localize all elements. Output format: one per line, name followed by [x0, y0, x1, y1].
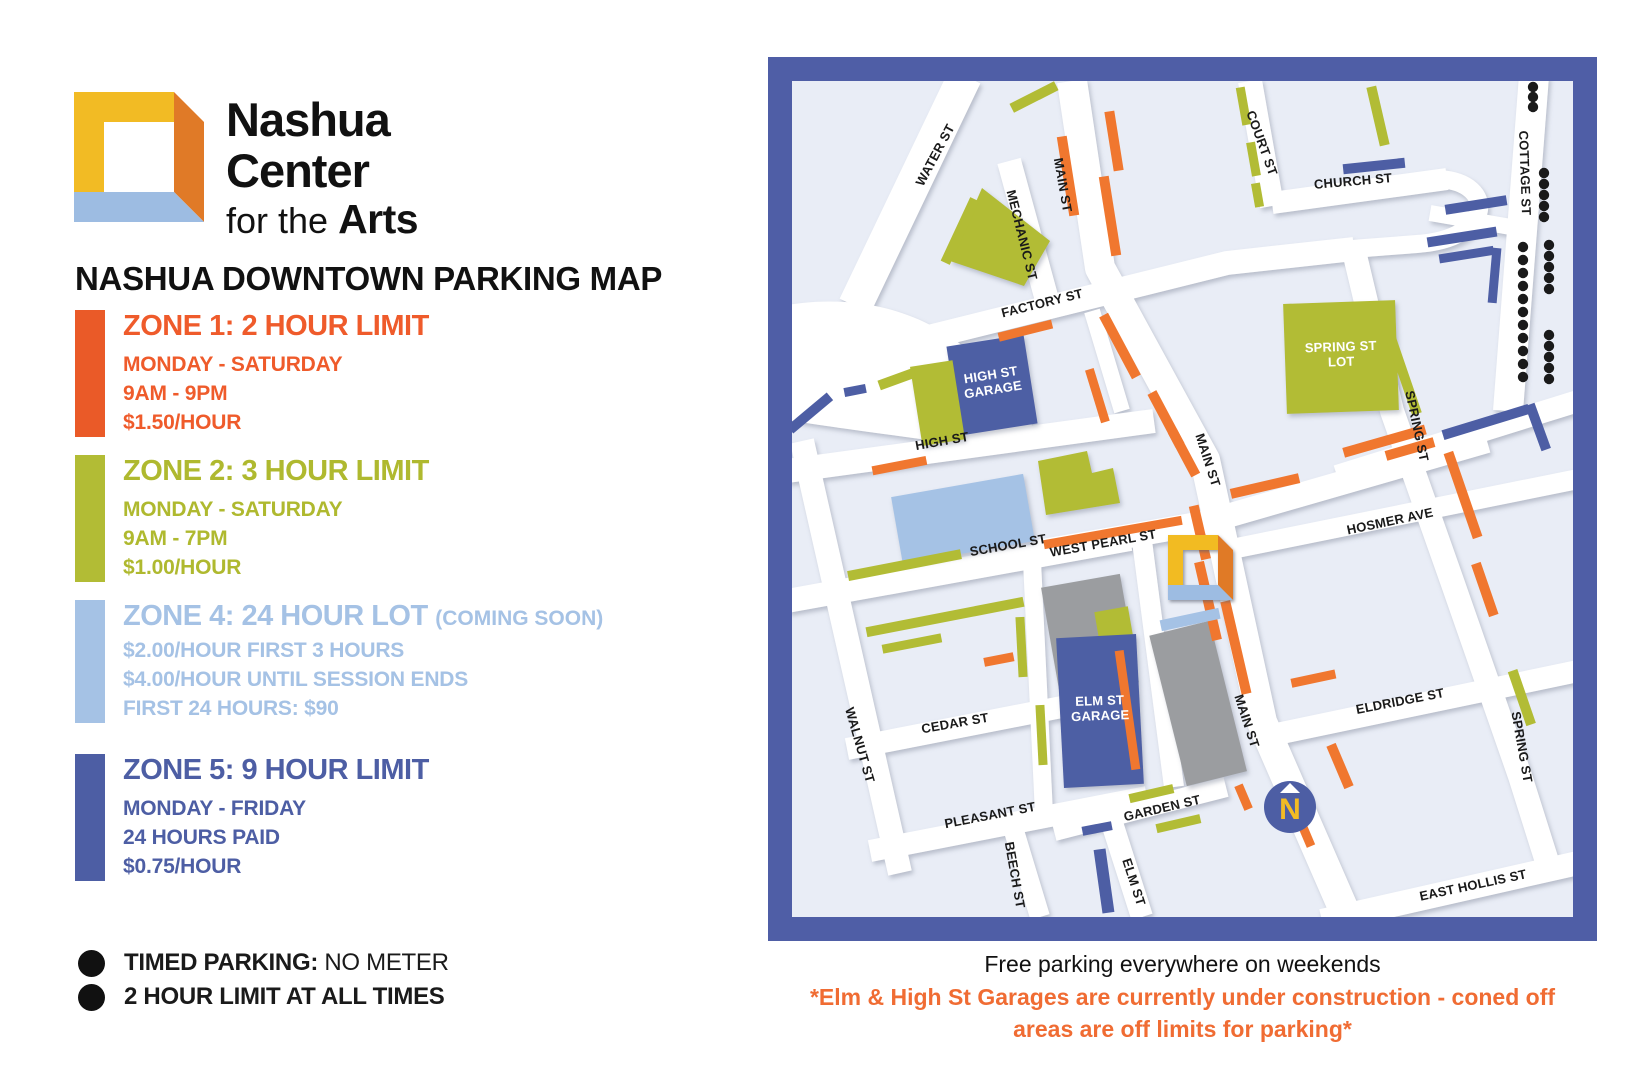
footer-construction-note: *Elm & High St Garages are currently und… — [768, 981, 1597, 1013]
brand-name: Nashua Center for the Arts — [226, 94, 418, 240]
map-canvas: N WATER ST MECHANIC ST MAIN ST COURT ST … — [792, 81, 1573, 917]
zone-4-details: $2.00/HOUR FIRST 3 HOURS $4.00/HOUR UNTI… — [123, 636, 603, 723]
brand-line-3: for the Arts — [226, 199, 418, 240]
legend-zone-5: ZONE 5: 9 HOUR LIMIT MONDAY - FRIDAY 24 … — [75, 754, 429, 881]
legend-zone-1: ZONE 1: 2 HOUR LIMIT MONDAY - SATURDAY 9… — [75, 310, 429, 437]
zone-1-heading: ZONE 1: 2 HOUR LIMIT — [123, 310, 429, 343]
timed-parking-dot-icon — [78, 984, 105, 1011]
zone-2-details: MONDAY - SATURDAY 9AM - 7PM $1.00/HOUR — [123, 495, 429, 582]
svg-text:N: N — [1279, 793, 1301, 826]
zone-5-color-bar — [75, 754, 105, 881]
brand-line-1: Nashua — [226, 94, 418, 145]
nashua-center-logo-icon — [74, 92, 204, 227]
timed-parking-row-1: TIMED PARKING: NO METER — [78, 946, 449, 980]
footer-weekend-note: Free parking everywhere on weekends — [768, 948, 1597, 981]
brand-line-2: Center — [226, 145, 418, 196]
footer-notes: Free parking everywhere on weekends *Elm… — [768, 948, 1597, 1045]
zone-2-color-bar — [75, 455, 105, 582]
timed-parking-row-2: 2 HOUR LIMIT AT ALL TIMES — [78, 980, 449, 1014]
zone-5-details: MONDAY - FRIDAY 24 HOURS PAID $0.75/HOUR — [123, 794, 429, 881]
street-label-cottage: COTTAGE ST — [1516, 130, 1534, 215]
place-label-spring-st-lot: SPRING ST LOT — [1305, 339, 1378, 371]
zone-5-heading: ZONE 5: 9 HOUR LIMIT — [123, 754, 429, 787]
legend-zone-2: ZONE 2: 3 HOUR LIMIT MONDAY - SATURDAY 9… — [75, 455, 429, 582]
place-label-elm-st-garage: ELM ST GARAGE — [1070, 693, 1129, 725]
zone-4-heading: ZONE 4: 24 HOUR LOT (COMING SOON) — [123, 600, 603, 633]
parking-map-page: Nashua Center for the Arts NASHUA DOWNTO… — [0, 0, 1649, 1074]
page-title: NASHUA DOWNTOWN PARKING MAP — [75, 260, 662, 298]
map-graphic: N — [792, 81, 1573, 917]
zone-1-color-bar — [75, 310, 105, 437]
timed-parking-dot-icon — [78, 950, 105, 977]
downtown-map: N WATER ST MECHANIC ST MAIN ST COURT ST … — [768, 57, 1597, 941]
zone-2-heading: ZONE 2: 3 HOUR LIMIT — [123, 455, 429, 488]
north-compass-icon: N — [1264, 781, 1316, 833]
zone-4-color-bar — [75, 600, 105, 723]
timed-parking-legend: TIMED PARKING: NO METER 2 HOUR LIMIT AT … — [78, 946, 449, 1014]
legend-zone-4: ZONE 4: 24 HOUR LOT (COMING SOON) $2.00/… — [75, 600, 603, 723]
footer-construction-note-2: areas are off limits for parking* — [768, 1013, 1597, 1045]
zone-1-details: MONDAY - SATURDAY 9AM - 9PM $1.50/HOUR — [123, 350, 429, 437]
